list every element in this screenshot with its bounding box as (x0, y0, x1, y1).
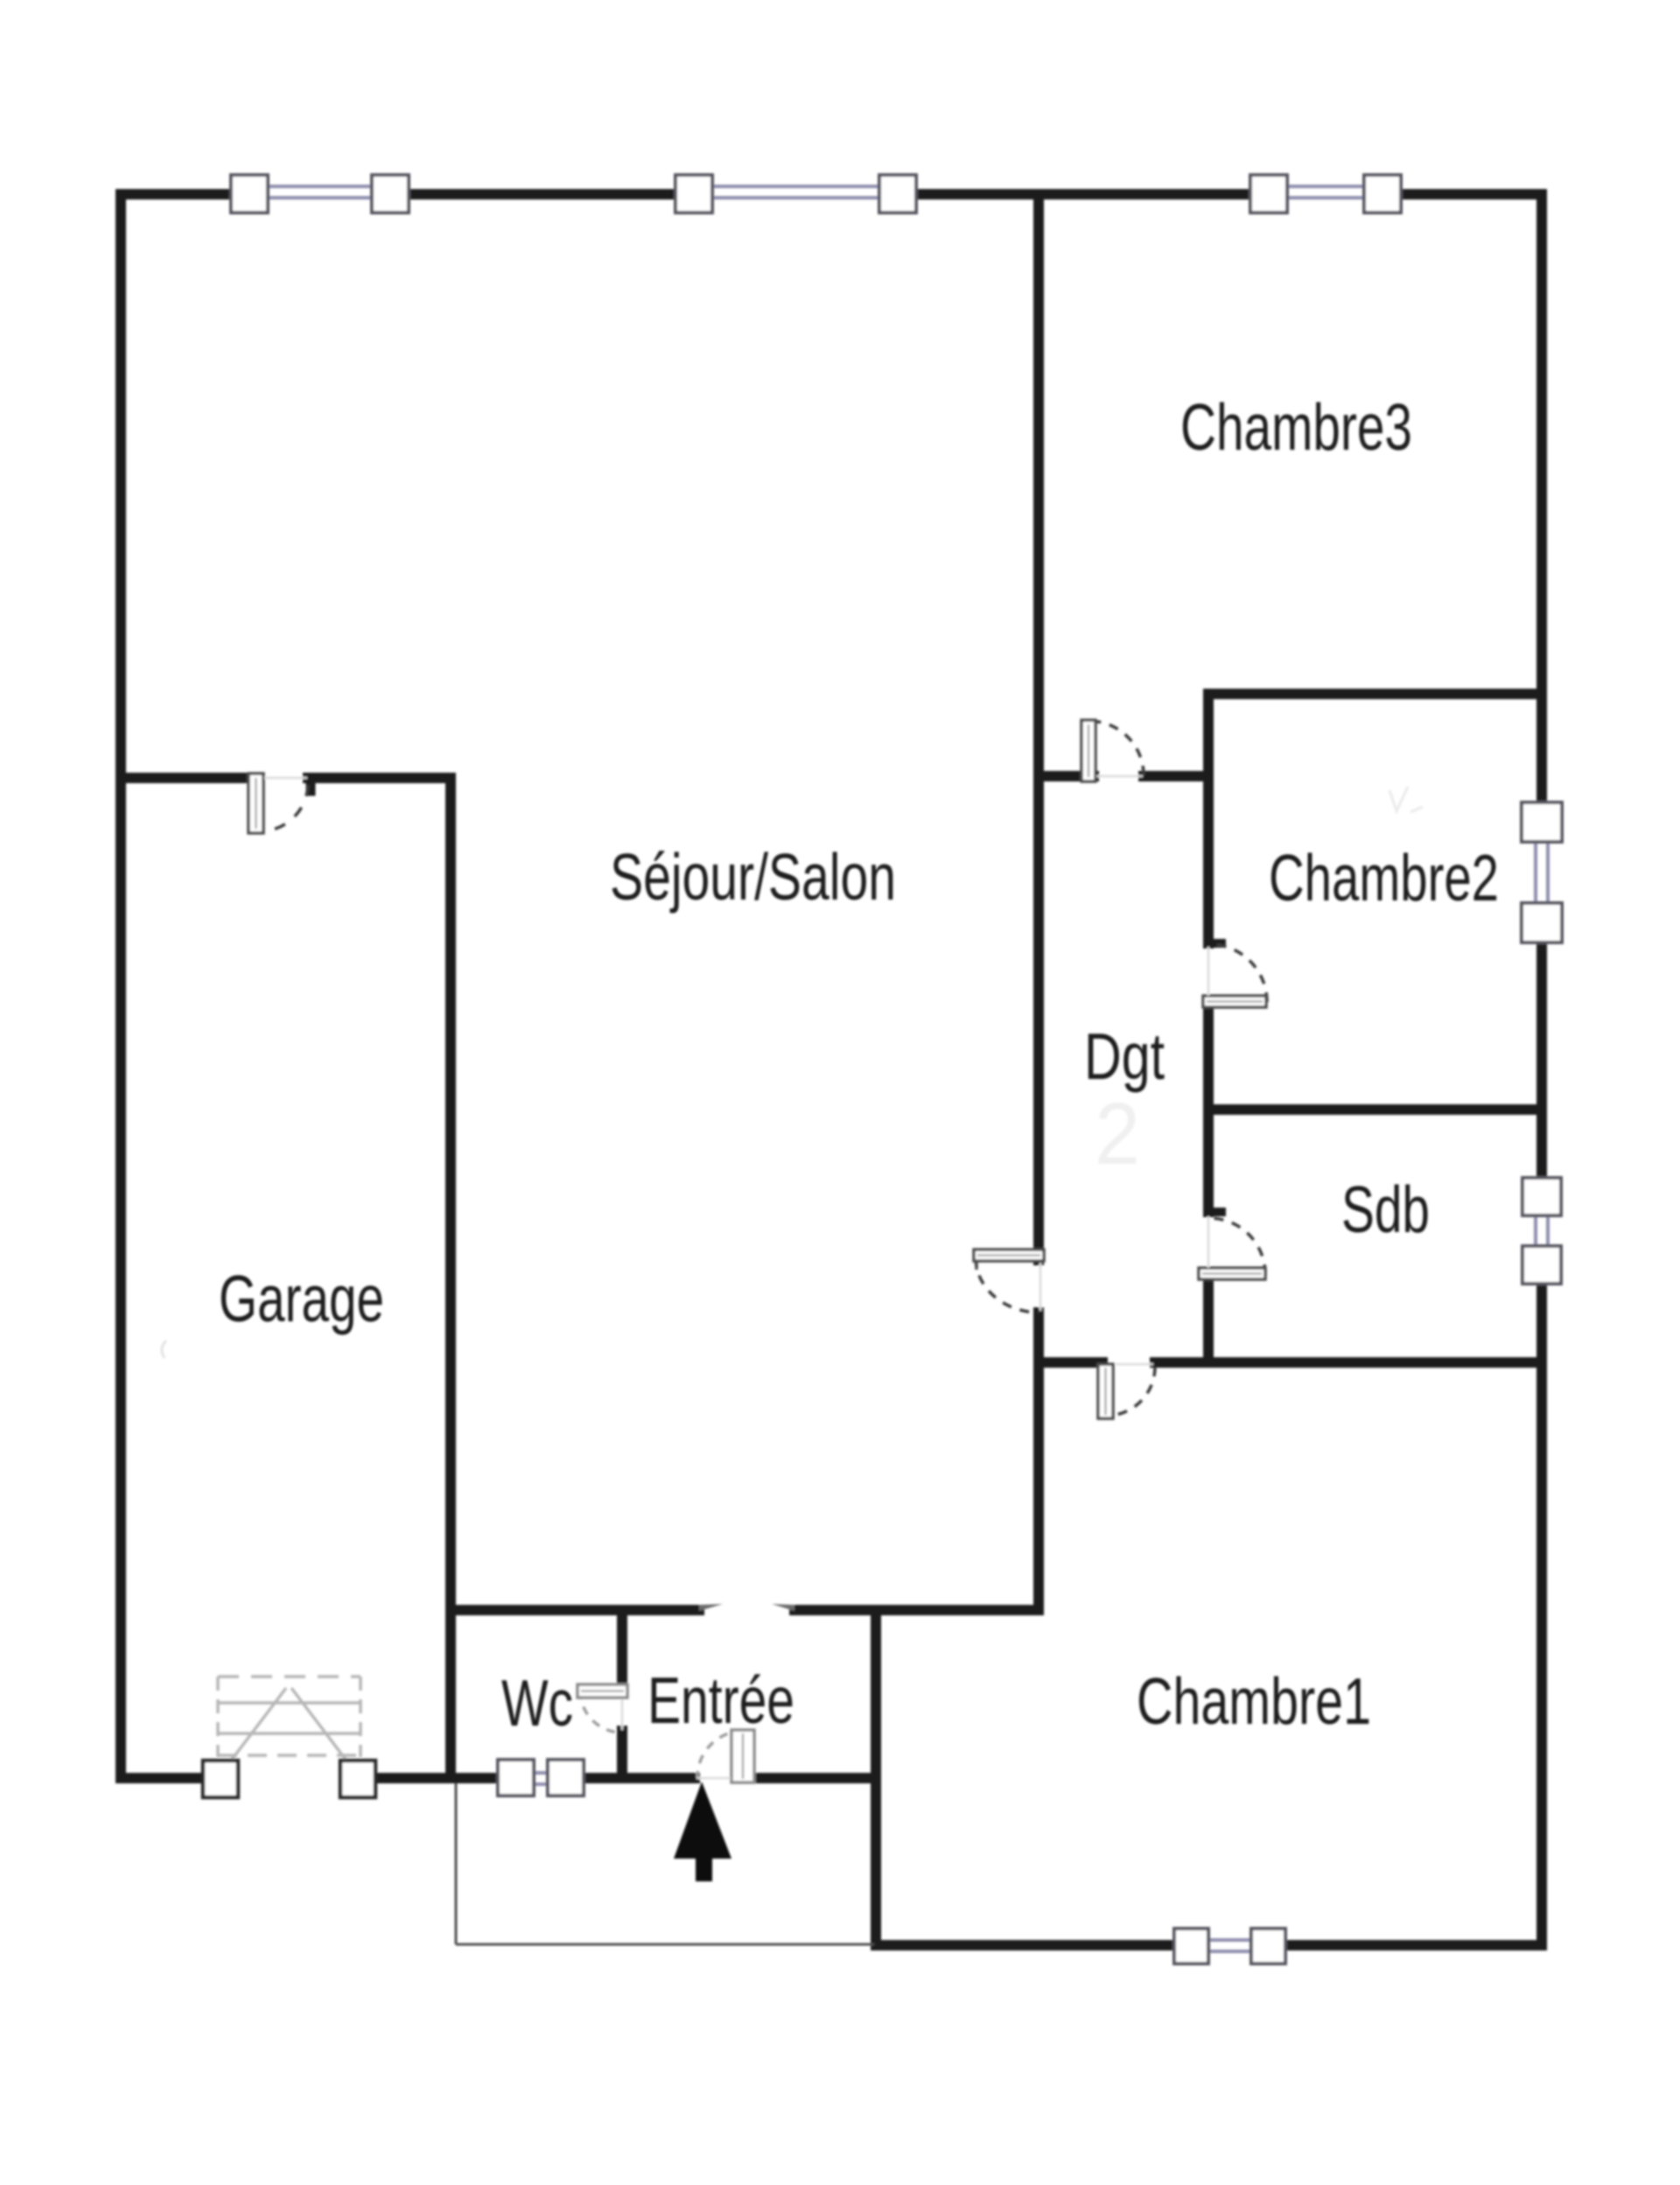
svg-text:2: 2 (1095, 1085, 1140, 1183)
svg-text:Chambre1: Chambre1 (1137, 1664, 1371, 1738)
svg-text:Entrée: Entrée (647, 1663, 794, 1737)
svg-text:Wc: Wc (501, 1666, 573, 1740)
svg-text:Séjour/Salon: Séjour/Salon (610, 840, 896, 914)
svg-text:Garage: Garage (219, 1262, 384, 1335)
svg-text:Dgt: Dgt (1084, 1019, 1165, 1093)
svg-text:Sdb: Sdb (1341, 1173, 1430, 1246)
svg-text:Chambre2: Chambre2 (1269, 841, 1499, 914)
svg-text:Chambre3: Chambre3 (1180, 390, 1412, 464)
